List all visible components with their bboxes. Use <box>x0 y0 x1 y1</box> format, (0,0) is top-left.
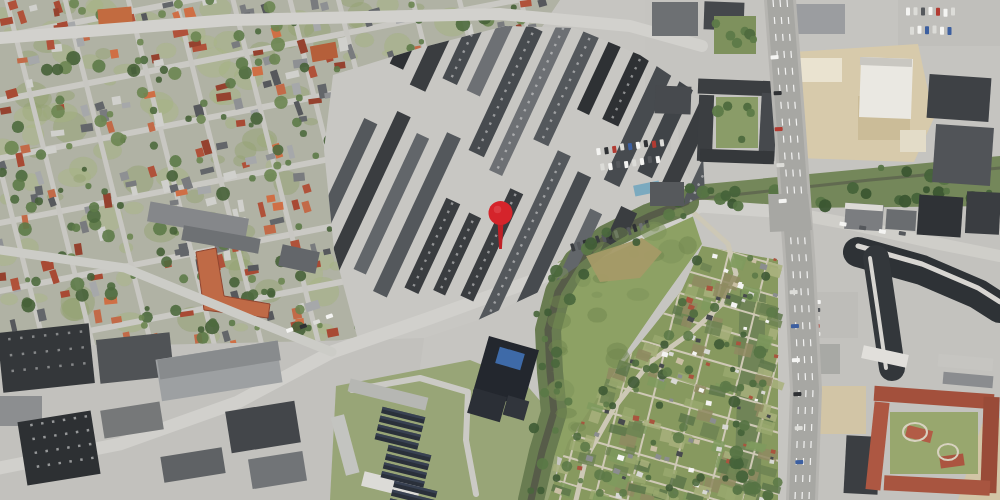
satellite-map-canvas[interactable] <box>0 0 1000 500</box>
map-viewport[interactable] <box>0 0 1000 500</box>
satellite-imagery-layer <box>0 0 1000 500</box>
